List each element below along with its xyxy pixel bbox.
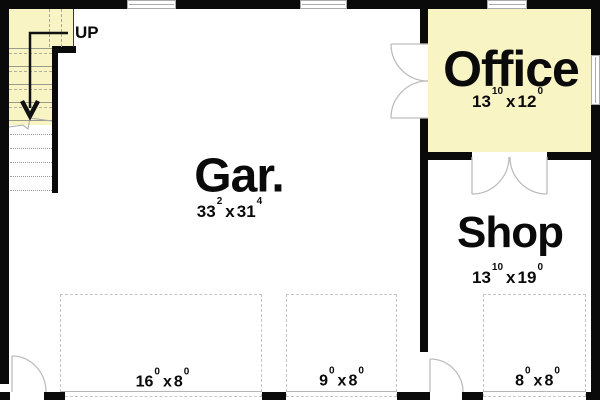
stair-tread-dashed bbox=[9, 71, 52, 72]
dim-separator: x bbox=[225, 202, 234, 221]
stair-tread bbox=[9, 120, 52, 121]
dim-inches: 10 bbox=[492, 262, 503, 273]
stairs-up-label: UP bbox=[75, 23, 99, 43]
dim-separator: x bbox=[338, 373, 347, 390]
wall-bottom-pier-1 bbox=[44, 392, 65, 400]
stair-landing-edge bbox=[73, 9, 74, 47]
stair-tread-dashed bbox=[9, 89, 52, 90]
dim-feet: 9 bbox=[319, 373, 328, 390]
office-label: Office bbox=[443, 40, 579, 98]
garage-shop-wall bbox=[420, 152, 428, 352]
dim-inches: 0 bbox=[525, 365, 531, 376]
dim-inches: 0 bbox=[184, 366, 190, 377]
dim-feet: 12 bbox=[518, 92, 537, 111]
overhead-door-panel-8ft bbox=[483, 391, 586, 392]
dim-inches: 2 bbox=[217, 196, 223, 207]
dim-feet: 8 bbox=[544, 373, 553, 390]
dim-inches: 0 bbox=[358, 365, 364, 376]
dim-feet: 31 bbox=[237, 202, 256, 221]
stair-tread-dotted bbox=[10, 134, 52, 135]
wall-bottom-corner-left bbox=[0, 392, 10, 400]
window-symbol-office bbox=[487, 0, 527, 9]
window-pane-line bbox=[302, 4, 345, 5]
window-pane-line bbox=[595, 57, 596, 103]
stair-tread-dashed bbox=[9, 107, 52, 108]
stair-wall bbox=[52, 53, 58, 193]
dim-separator: x bbox=[506, 92, 515, 111]
dim-feet: 13 bbox=[472, 268, 491, 287]
wall-top-2 bbox=[176, 0, 300, 9]
wall-top-3 bbox=[347, 0, 487, 9]
shop-label: Shop bbox=[457, 208, 563, 258]
wall-left bbox=[0, 0, 9, 384]
wall-bottom-pier-3 bbox=[397, 392, 430, 400]
stair-tread-dotted bbox=[10, 162, 52, 163]
shop-double-door-icon bbox=[472, 157, 547, 194]
dim-inches: 0 bbox=[329, 365, 335, 376]
dim-inches: 10 bbox=[492, 86, 503, 97]
window-symbol-top-2 bbox=[300, 0, 347, 9]
stair-tread bbox=[9, 66, 52, 67]
floor-plan: UP Gar. 332x314 Office 1310x120 Shop 131… bbox=[0, 0, 600, 401]
overhead-door-dimension-16ft: 160x80 bbox=[136, 372, 191, 391]
stair-landing-divider bbox=[49, 9, 50, 47]
stair-tread bbox=[9, 48, 52, 49]
office-double-door-icon bbox=[391, 44, 428, 118]
window-pane-line bbox=[129, 4, 174, 5]
stair-tread bbox=[9, 102, 52, 103]
dim-inches: 0 bbox=[537, 86, 543, 97]
wall-right-lower bbox=[591, 105, 600, 400]
overhead-door-dimension-9ft: 90x80 bbox=[319, 371, 365, 390]
dim-feet: 13 bbox=[472, 92, 491, 111]
dim-inches: 0 bbox=[554, 365, 560, 376]
garage-label: Gar. bbox=[194, 149, 283, 204]
dim-inches: 4 bbox=[257, 196, 263, 207]
window-symbol-right bbox=[591, 55, 600, 105]
dim-feet: 8 bbox=[515, 373, 524, 390]
overhead-door-dimension-8ft: 80x80 bbox=[515, 371, 561, 390]
entry-door-left-icon bbox=[12, 356, 46, 392]
office-wall-bottom-right bbox=[547, 152, 600, 160]
stair-wall-header bbox=[52, 46, 76, 53]
office-wall-left-upper bbox=[420, 0, 428, 44]
office-dimension: 1310x120 bbox=[472, 92, 544, 112]
wall-top-1 bbox=[0, 0, 127, 9]
window-pane-line bbox=[489, 4, 525, 5]
dim-feet: 16 bbox=[136, 374, 154, 391]
dim-feet: 8 bbox=[348, 373, 357, 390]
wall-bottom-corner-right bbox=[586, 392, 600, 400]
dim-feet: 19 bbox=[518, 268, 537, 287]
dim-feet: 33 bbox=[197, 202, 216, 221]
dim-inches: 0 bbox=[154, 366, 160, 377]
dim-separator: x bbox=[163, 374, 172, 391]
dim-separator: x bbox=[534, 373, 543, 390]
stair-tread-dashed bbox=[9, 53, 52, 54]
wall-right-upper bbox=[591, 0, 600, 55]
dim-separator: x bbox=[506, 268, 515, 287]
dim-feet: 8 bbox=[174, 374, 183, 391]
garage-dimension: 332x314 bbox=[197, 202, 263, 222]
overhead-door-panel-9ft bbox=[286, 391, 397, 392]
wall-bottom-pier-2 bbox=[262, 392, 286, 400]
wall-top-4 bbox=[527, 0, 600, 9]
stair-tread-dotted bbox=[10, 148, 52, 149]
shop-dimension: 1310x190 bbox=[472, 268, 544, 288]
stair-landing-divider bbox=[61, 9, 62, 47]
stair-tread-dotted bbox=[10, 190, 52, 191]
stair-tread bbox=[9, 84, 52, 85]
shop-entry-door-icon bbox=[430, 359, 463, 392]
window-symbol-top-1 bbox=[127, 0, 176, 9]
stair-tread-dotted bbox=[10, 176, 52, 177]
dim-inches: 0 bbox=[537, 262, 543, 273]
wall-bottom-pier-4 bbox=[462, 392, 483, 400]
